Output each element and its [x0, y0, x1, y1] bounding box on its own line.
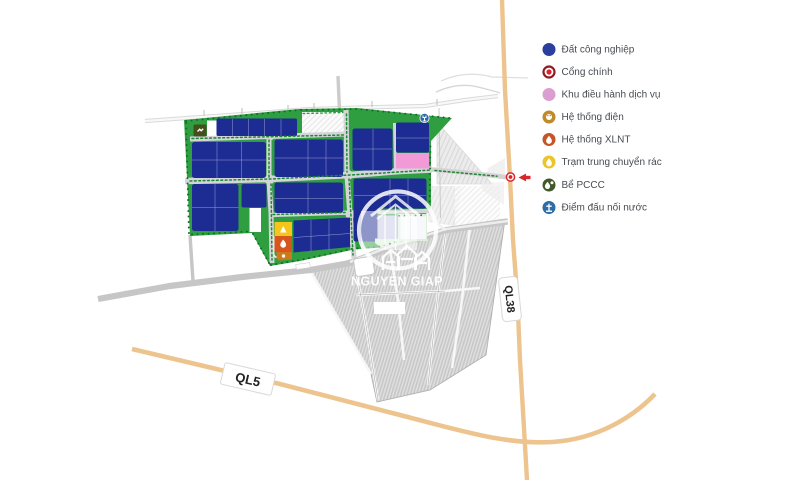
- svg-text:Trạm trung chuyển rác: Trạm trung chuyển rác: [562, 156, 662, 168]
- svg-text:Hệ thống điện: Hệ thống điện: [562, 111, 624, 123]
- svg-text:Điểm đấu nối nước: Điểm đấu nối nước: [562, 202, 648, 214]
- svg-text:NGUYEN GIAP: NGUYEN GIAP: [351, 275, 443, 289]
- svg-text:Cổng chính: Cổng chính: [562, 66, 613, 78]
- svg-text:Đất công nghiệp: Đất công nghiệp: [562, 44, 635, 56]
- svg-text:Hệ thống XLNT: Hệ thống XLNT: [562, 134, 631, 146]
- svg-text:Bể PCCC: Bể PCCC: [562, 179, 605, 191]
- svg-text:Khu điều hành dịch vụ: Khu điều hành dịch vụ: [562, 89, 661, 101]
